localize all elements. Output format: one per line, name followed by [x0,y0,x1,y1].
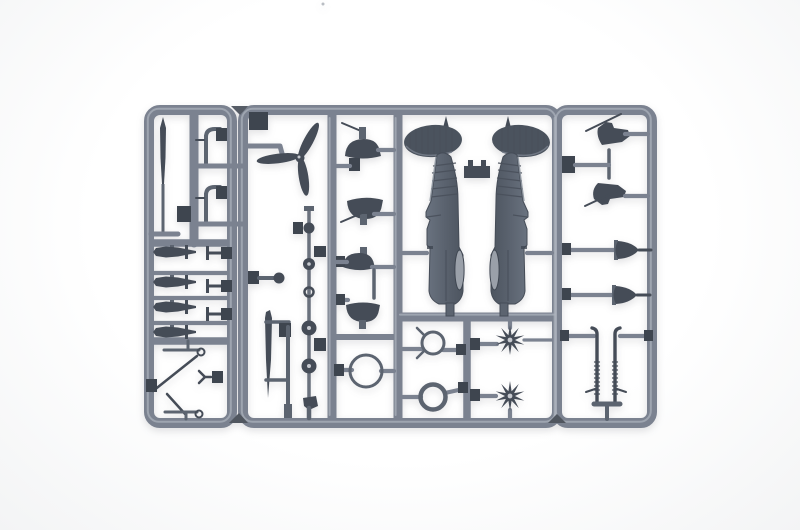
reinforced-ring [403,382,468,410]
bomb-2 [153,275,196,289]
sprue-frame [148,3,652,424]
large-cowl-ring [334,355,394,387]
ball-pin [248,271,285,284]
photo-stage [0,0,800,530]
antenna-mast [151,117,191,234]
bomb-4 [153,325,196,339]
dust-speck [322,3,325,6]
wheel-spat-4 [336,270,380,329]
fork-link [199,371,223,383]
wheel-spat-3 [336,247,394,270]
bomb-1 [153,245,196,259]
wheel-spat-2 [341,198,394,225]
parts-chain [293,206,326,418]
strut-rod-lower [165,411,203,420]
chain-ball [304,223,315,234]
bomb-3 [153,300,196,314]
engine-cylinder-star-2 [470,381,524,418]
tail-joiner [464,160,490,178]
gear-mount-2 [585,183,648,206]
machine-gun-pair [560,328,653,419]
fuselage-half-right [490,116,551,316]
sprue-gate-large [249,112,268,130]
gear-mount-1 [586,114,648,145]
t-pin-2 [206,279,232,293]
sight-ring [403,328,466,358]
fuselage-half-left [403,116,464,316]
t-pin-3 [206,307,232,321]
spinner-cone-1 [562,240,651,260]
engine-cylinder-star-1 [470,321,552,355]
propeller [247,121,322,197]
wheel-spat-1 [336,123,394,171]
spinner-cone-2 [562,285,650,305]
sprue-photo [0,0,800,530]
t-pin-1 [206,246,232,260]
